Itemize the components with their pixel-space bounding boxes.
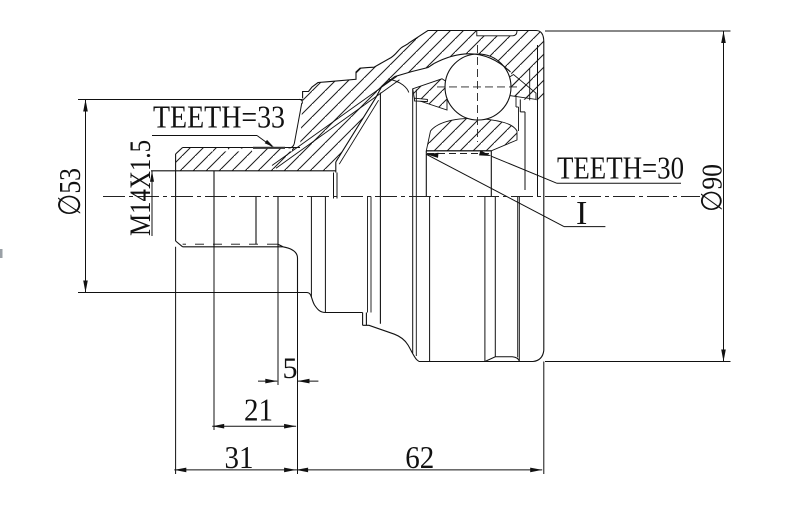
svg-text:TEETH=30: TEETH=30 [557,150,684,186]
svg-text:62: 62 [405,439,434,475]
svg-text:TEETH=33: TEETH=33 [153,99,285,135]
svg-text:21: 21 [244,392,273,428]
svg-text:31: 31 [225,439,254,475]
svg-text:∅90: ∅90 [697,164,729,212]
svg-text:∅53: ∅53 [52,168,87,216]
svg-text:5: 5 [283,352,298,385]
svg-text:M14X1.5: M14X1.5 [124,140,157,236]
